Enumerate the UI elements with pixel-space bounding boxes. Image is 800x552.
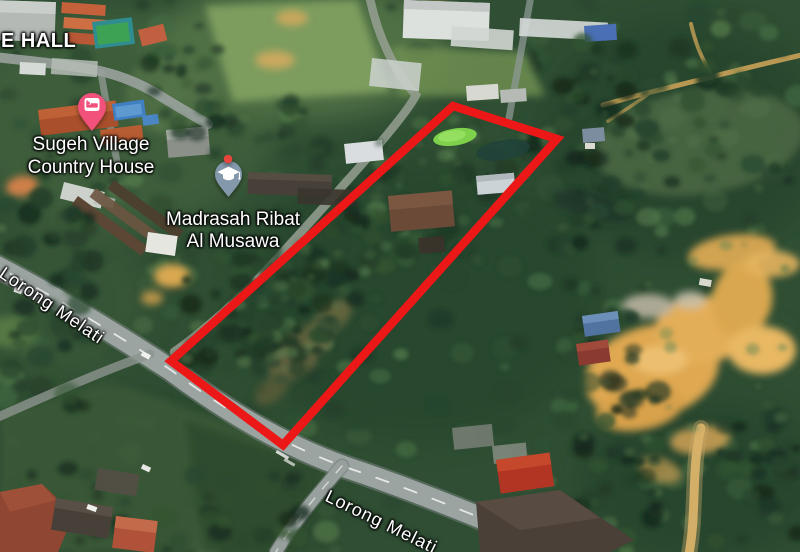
tree-blob: [187, 125, 206, 141]
label-line: Country House: [10, 156, 172, 179]
tree-blob: [268, 470, 281, 482]
tree-blob: [184, 466, 207, 485]
tree-blob: [211, 45, 224, 55]
tree-blob: [756, 438, 774, 451]
tree-blob: [638, 287, 646, 294]
tree-blob: [297, 107, 308, 115]
tree-blob: [75, 537, 85, 545]
tree-blob: [636, 208, 662, 226]
tree-blob: [309, 156, 326, 172]
tree-blob: [745, 490, 760, 501]
tree-blob: [688, 157, 706, 174]
tree-blob: [64, 284, 81, 298]
tree-blob: [308, 274, 314, 280]
tree-blob: [570, 215, 585, 228]
tree-blob: [360, 315, 378, 331]
tree-blob: [611, 404, 623, 414]
tree-blob: [364, 230, 383, 244]
tree-blob: [534, 437, 551, 451]
tree-blob: [26, 346, 54, 367]
tree-blob: [236, 309, 256, 323]
tree-blob: [288, 143, 303, 153]
tree-blob: [220, 358, 238, 372]
tree-blob: [274, 282, 288, 292]
tree-blob: [726, 88, 745, 102]
tree-blob: [140, 55, 160, 73]
tree-blob: [253, 527, 275, 544]
tree-blob: [369, 295, 381, 303]
tree-blob: [296, 389, 311, 401]
tree-blob: [419, 158, 427, 165]
tree-blob: [693, 117, 707, 129]
tree-blob: [736, 535, 747, 544]
tree-blob: [195, 98, 214, 116]
tree-blob: [347, 413, 373, 431]
tree-blob: [278, 124, 294, 138]
tree-blob: [772, 457, 792, 471]
tree-blob: [194, 83, 212, 95]
tree-blob: [745, 214, 755, 224]
tree-blob: [659, 327, 673, 339]
tree-blob: [588, 203, 610, 219]
tree-blob: [323, 402, 344, 418]
tree-blob: [217, 517, 231, 528]
tree-blob: [719, 240, 733, 250]
tree-blob: [686, 3, 713, 25]
tree-blob: [727, 449, 743, 463]
tree-blob: [647, 156, 655, 162]
tree-blob: [680, 89, 705, 112]
tree-blob: [162, 64, 175, 73]
tree-blob: [700, 41, 714, 51]
tree-blob: [73, 249, 87, 261]
tree-blob: [473, 255, 484, 266]
tree-blob: [768, 161, 781, 173]
map-canvas[interactable]: E HALL Sugeh Village Country House Madra…: [0, 0, 800, 552]
tree-blob: [380, 241, 391, 251]
tree-blob: [726, 462, 739, 472]
tree-blob: [624, 448, 635, 456]
tree-blob: [641, 508, 662, 528]
tree-blob: [54, 382, 80, 404]
tree-blob: [205, 348, 219, 358]
tree-blob: [754, 184, 763, 192]
tree-blob: [557, 224, 568, 231]
tree-blob: [497, 422, 513, 433]
tree-blob: [13, 119, 28, 129]
tree-blob: [520, 134, 528, 141]
tree-blob: [252, 314, 276, 335]
tree-blob: [279, 512, 298, 528]
tree-blob: [375, 139, 384, 146]
tree-blob: [574, 189, 584, 198]
tree-blob: [555, 237, 573, 254]
tree-blob: [59, 209, 79, 225]
tree-blob: [454, 161, 461, 166]
tree-blob: [450, 172, 466, 186]
tree-blob: [642, 183, 651, 189]
tree-blob: [275, 527, 288, 539]
tree-blob: [563, 278, 579, 292]
tree-blob: [303, 343, 313, 350]
satellite-imagery: [0, 0, 800, 552]
tree-blob: [669, 38, 693, 57]
tree-blob: [563, 387, 580, 403]
label-line: Madrasah Ribat: [153, 209, 313, 231]
tree-blob: [14, 378, 30, 392]
tree-blob: [287, 280, 306, 298]
tree-blob: [252, 364, 267, 376]
tree-blob: [428, 310, 453, 329]
tree-blob: [315, 315, 341, 334]
tree-blob: [627, 131, 639, 139]
tree-blob: [262, 132, 275, 142]
tree-blob: [312, 137, 329, 149]
tree-blob: [370, 369, 391, 383]
tree-blob: [353, 226, 364, 235]
tree-blob: [313, 521, 339, 543]
tree-blob: [498, 255, 523, 277]
tree-blob: [611, 56, 622, 65]
tree-blob: [211, 289, 221, 298]
tree-blob: [634, 172, 646, 183]
tree-blob: [50, 230, 62, 240]
tree-blob: [768, 512, 783, 524]
tree-blob: [646, 381, 671, 403]
tree-blob: [305, 351, 311, 355]
tree-blob: [371, 193, 383, 202]
tree-blob: [615, 81, 637, 99]
tree-blob: [223, 475, 238, 486]
tree-blob: [614, 200, 636, 215]
tree-blob: [625, 344, 642, 355]
tree-blob: [326, 225, 341, 237]
tree-blob: [281, 364, 290, 371]
tree-blob: [649, 454, 660, 462]
tree-blob: [106, 349, 116, 357]
label-line: Al Musawa: [153, 231, 313, 253]
tree-blob: [182, 275, 192, 284]
tree-blob: [575, 372, 601, 393]
tree-blob: [444, 270, 465, 289]
tree-blob: [137, 276, 157, 293]
tree-blob: [285, 471, 302, 484]
tree-blob: [373, 210, 389, 225]
tree-blob: [317, 351, 336, 369]
tree-blob: [636, 140, 651, 151]
tree-blob: [730, 62, 740, 70]
tree-blob: [396, 441, 417, 457]
tree-blob: [287, 319, 295, 327]
tree-blob: [253, 135, 264, 145]
tree-blob: [746, 343, 760, 355]
tree-blob: [169, 115, 188, 132]
tree-blob: [281, 294, 289, 301]
label-madrasah-ribat-al-musawa[interactable]: Madrasah Ribat Al Musawa: [153, 209, 313, 253]
tree-blob: [476, 167, 486, 174]
tree-blob: [162, 304, 180, 320]
tree-blob: [333, 250, 342, 257]
tree-blob: [646, 489, 657, 497]
tree-blob: [331, 302, 341, 309]
tree-blob: [572, 235, 589, 250]
tree-blob: [528, 273, 553, 290]
tree-blob: [364, 251, 375, 260]
tree-blob: [704, 142, 723, 159]
tree-blob: [0, 88, 17, 101]
tree-blob: [601, 175, 621, 191]
tree-blob: [716, 420, 734, 435]
tree-blob: [16, 319, 39, 336]
tree-blob: [615, 238, 636, 254]
tree-blob: [337, 285, 351, 295]
tree-blob: [331, 146, 342, 154]
tree-blob: [206, 341, 216, 349]
tree-blob: [134, 317, 153, 334]
tree-blob: [182, 45, 195, 54]
tree-blob: [44, 368, 61, 380]
tree-blob: [57, 339, 72, 353]
tree-blob: [194, 23, 203, 29]
tree-blob: [668, 137, 678, 144]
tree-blob: [297, 305, 311, 314]
tree-blob: [0, 359, 22, 379]
tree-blob: [202, 493, 214, 503]
tree-blob: [754, 224, 765, 234]
tree-blob: [57, 462, 78, 476]
tree-blob: [622, 407, 637, 419]
tree-blob: [698, 59, 715, 72]
tree-blob: [590, 286, 603, 295]
tree-blob: [590, 499, 600, 507]
tree-blob: [268, 296, 282, 306]
tree-blob: [735, 72, 747, 83]
label-line: Sugeh Village: [10, 133, 172, 156]
tree-blob: [216, 323, 240, 345]
tree-blob: [346, 292, 365, 307]
tree-blob: [78, 400, 91, 412]
lodging-pin[interactable]: [77, 92, 107, 132]
tree-blob: [395, 181, 403, 189]
tree-blob: [553, 410, 576, 429]
tree-blob: [285, 348, 297, 358]
tree-blob: [690, 257, 698, 264]
tree-blob: [719, 120, 730, 130]
tree-blob: [640, 78, 662, 98]
tree-blob: [632, 189, 645, 199]
tree-blob: [751, 467, 768, 480]
tree-blob: [302, 263, 327, 282]
tree-blob: [586, 198, 595, 206]
tree-blob: [273, 374, 289, 385]
tree-blob: [749, 453, 766, 465]
tree-blob: [236, 537, 249, 546]
tree-blob: [596, 413, 616, 430]
tree-blob: [176, 64, 187, 72]
tree-blob: [598, 483, 613, 495]
tree-blob: [665, 404, 672, 409]
tree-blob: [755, 383, 761, 388]
tree-blob: [634, 457, 645, 466]
tree-blob: [288, 529, 308, 546]
tree-blob: [786, 468, 799, 478]
tree-blob: [591, 44, 604, 55]
tree-blob: [500, 363, 510, 371]
tree-blob: [590, 69, 598, 74]
tree-blob: [554, 116, 573, 132]
tree-blob: [237, 356, 251, 367]
tree-blob: [80, 283, 99, 300]
tree-blob: [625, 312, 640, 323]
tree-blob: [448, 114, 460, 124]
tree-blob: [393, 348, 408, 360]
tree-blob: [208, 147, 222, 160]
tree-blob: [686, 423, 699, 433]
tree-blob: [664, 71, 677, 83]
tree-blob: [703, 174, 716, 183]
tree-blob: [427, 398, 449, 414]
tree-blob: [495, 384, 518, 401]
tree-blob: [709, 136, 719, 143]
tree-blob: [741, 241, 748, 247]
tree-blob: [231, 252, 251, 268]
tree-blob: [624, 149, 634, 157]
tree-blob: [11, 235, 37, 259]
tree-blob: [283, 104, 300, 119]
tree-blob: [159, 108, 172, 119]
tree-blob: [784, 443, 794, 453]
tree-blob: [552, 77, 574, 94]
tree-blob: [589, 459, 608, 472]
tree-blob: [634, 102, 651, 118]
tree-blob: [312, 293, 333, 313]
tree-blob: [654, 225, 668, 237]
tree-blob: [290, 277, 297, 282]
tree-blob: [206, 114, 226, 129]
tree-blob: [732, 422, 747, 432]
tree-blob: [650, 502, 661, 512]
tree-blob: [645, 282, 652, 287]
tree-blob: [563, 104, 578, 115]
tree-blob: [763, 497, 773, 504]
tree-blob: [580, 434, 587, 439]
dot: [224, 155, 233, 164]
tree-blob: [524, 205, 546, 224]
tree-blob: [586, 4, 597, 11]
tree-blob: [674, 208, 695, 226]
tree-blob: [664, 176, 681, 188]
tree-blob: [664, 341, 677, 353]
tree-blob: [775, 45, 789, 56]
tree-blob: [291, 325, 302, 334]
tree-blob: [767, 424, 779, 433]
tree-blob: [445, 153, 456, 160]
tree-blob: [265, 353, 279, 363]
tree-blob: [92, 491, 104, 500]
tree-blob: [762, 402, 775, 410]
tree-blob: [778, 344, 788, 351]
tree-blob: [740, 155, 765, 174]
tree-blob: [164, 53, 175, 62]
tree-blob: [181, 78, 193, 89]
tree-blob: [775, 412, 789, 422]
tree-blob: [509, 336, 529, 351]
tree-blob: [29, 187, 53, 209]
tree-blob: [641, 435, 652, 443]
tree-blob: [26, 470, 37, 480]
tree-blob: [707, 533, 725, 549]
tree-blob: [12, 338, 27, 349]
tree-blob: [450, 343, 474, 364]
tree-blob: [596, 101, 620, 119]
tree-blob: [573, 33, 593, 52]
tree-blob: [711, 21, 731, 38]
tree-blob: [198, 57, 214, 70]
education-pin[interactable]: [214, 160, 243, 198]
tree-blob: [317, 257, 325, 263]
tree-blob: [636, 468, 656, 484]
tree-blob: [360, 267, 371, 277]
tree-blob: [226, 120, 245, 137]
label-hall: E HALL: [1, 30, 76, 53]
tree-blob: [625, 475, 640, 486]
tree-blob: [374, 183, 385, 190]
tree-blob: [180, 295, 202, 315]
tree-blob: [386, 3, 396, 11]
tree-blob: [578, 63, 602, 81]
label-sugeh-village-country-house[interactable]: Sugeh Village Country House: [10, 133, 172, 179]
tree-blob: [288, 360, 306, 377]
tree-blob: [397, 245, 416, 260]
tree-blob: [780, 264, 790, 273]
tree-blob: [49, 274, 63, 286]
tree-blob: [657, 246, 667, 255]
tree-blob: [739, 11, 767, 30]
tree-blob: [119, 496, 132, 507]
tree-blob: [147, 87, 161, 96]
tree-blob: [457, 216, 469, 226]
tree-blob: [633, 389, 649, 400]
tree-blob: [601, 379, 610, 387]
tree-blob: [621, 455, 635, 465]
tree-blob: [648, 131, 663, 145]
tree-blob: [81, 221, 98, 236]
red-dot-marker[interactable]: [223, 154, 233, 164]
tree-blob: [78, 468, 96, 481]
tree-blob: [601, 112, 608, 117]
tree-blob: [782, 491, 797, 503]
tree-blob: [615, 114, 635, 127]
tree-blob: [588, 151, 609, 168]
